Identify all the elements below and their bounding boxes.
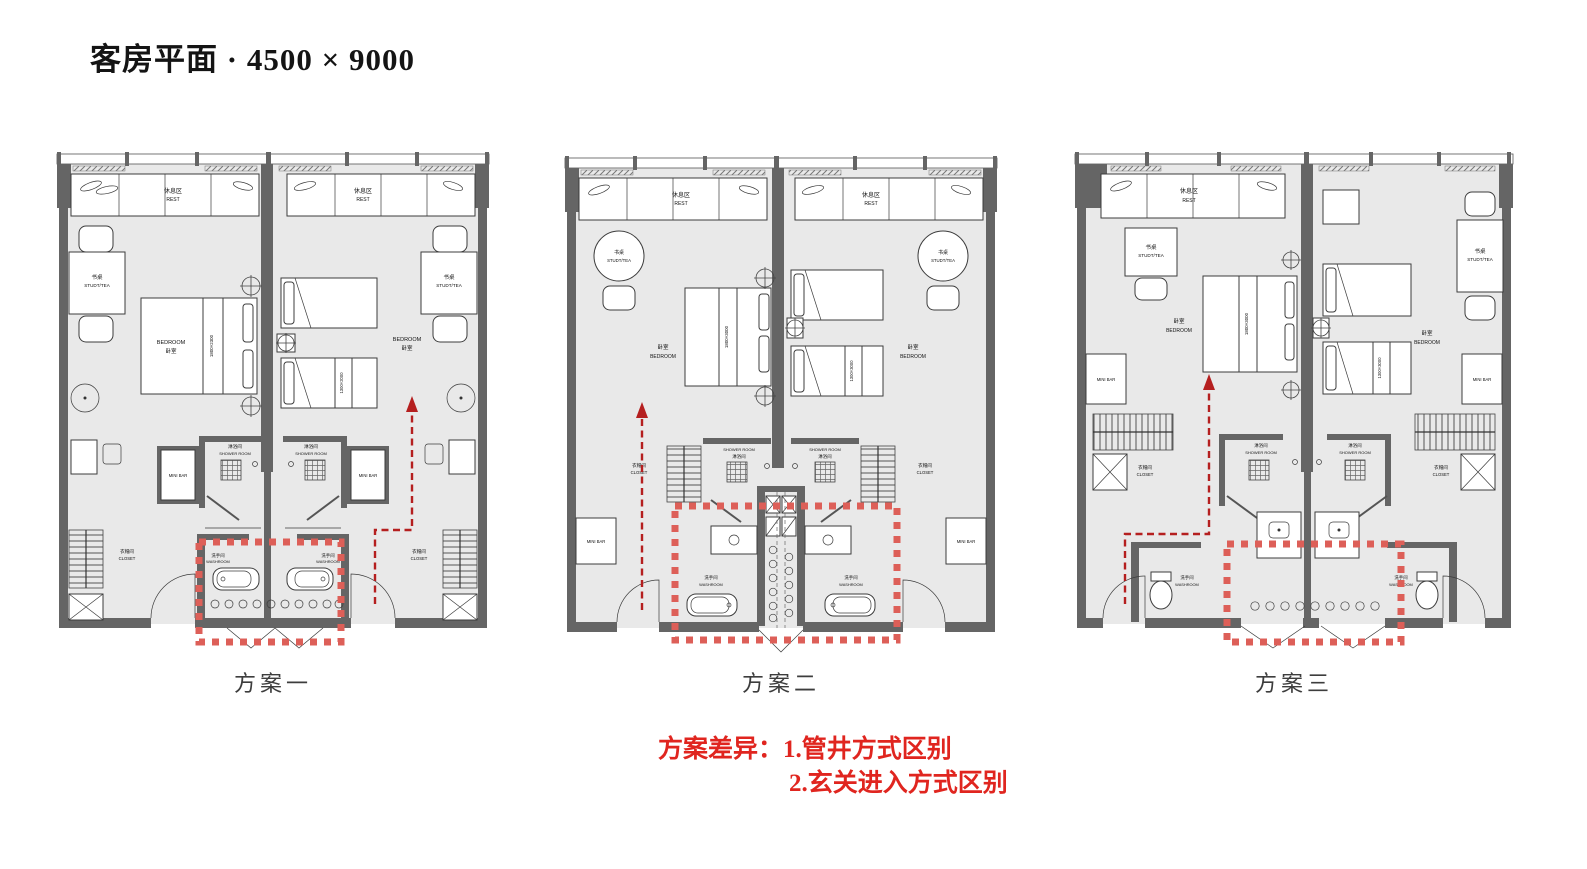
washroom-label-cn: 洗手间 (704, 574, 717, 581)
rest-label-en: REST (1182, 198, 1195, 204)
rest-label-en: REST (166, 197, 179, 203)
desk-label-cn: 书桌 (443, 273, 455, 281)
desk-label-cn: 书桌 (91, 273, 103, 281)
minibar-label: MINI BAR (1097, 377, 1116, 382)
sofa-rest-area-right: 休息区 REST (795, 178, 983, 220)
rest-label-cn: 休息区 (354, 187, 372, 195)
shower-label-cn: 淋浴间 (1254, 442, 1267, 449)
rest-label-cn: 休息区 (1180, 187, 1198, 195)
bedroom-label-en: BEDROOM (1414, 340, 1440, 346)
notes-item-2: 2.玄关进入方式区别 (789, 767, 1008, 801)
bedroom-label-en: BEDROOM (393, 337, 422, 343)
closet-label-en: CLOSET (1433, 472, 1450, 477)
floor-plan-scheme-3-drawing: 休息区 REST 书桌 STUDT/TEA 1800×3000 卧室 BEDRO… (1073, 148, 1515, 653)
bedroom-label-en: BEDROOM (1166, 328, 1192, 334)
desk-label-en: STUDT/TEA (607, 258, 631, 263)
minibar-right: MINI BAR (347, 446, 389, 504)
sofa-rest-area-left: 休息区 REST (1101, 174, 1285, 218)
minibar-label: MINI BAR (1473, 377, 1492, 382)
desk-label-en: STUDT/TEA (1138, 253, 1164, 258)
floor-plan-scheme-1: 休息区 REST 休息区 REST 书桌 STUDT/TEA 书桌 STUDT/… (55, 148, 491, 653)
sofa-rest-area-left: 休息区 REST (579, 178, 767, 220)
bedroom-label-cn: 卧室 (1173, 317, 1185, 325)
sofa-rest-area-left: 休息区 REST (71, 174, 259, 216)
rest-label-cn: 休息区 (862, 191, 880, 199)
minibar-left: MINI BAR (1086, 354, 1126, 404)
bed-size-label: 1300×2000 (339, 372, 344, 394)
desk-label-en: STUDT/TEA (931, 258, 955, 263)
bedroom-label-cn: 卧室 (907, 343, 919, 351)
shower-label-en: SHOWER ROOM (295, 451, 327, 456)
presentation-slide: 客房平面 · 4500 × 9000 休息区 (0, 0, 1587, 869)
rest-label-en: REST (674, 201, 687, 207)
rest-label-cn: 休息区 (164, 187, 182, 195)
notes-prefix: 方案差异： (658, 736, 783, 763)
closet-label-en: CLOSET (631, 470, 648, 475)
caption-scheme-3: 方案三 (1073, 666, 1515, 698)
washroom-label-en: WASHROOM (1175, 582, 1199, 587)
shower-label-en: SHOWER ROOM (723, 447, 755, 452)
desk-label-cn: 书桌 (1145, 243, 1157, 251)
minibar-label: MINI BAR (169, 473, 188, 478)
bedroom-label-en: BEDROOM (157, 340, 186, 346)
washroom-label-cn: 洗手间 (1180, 574, 1193, 581)
desk-label-en: STUDT/TEA (84, 283, 110, 288)
floor-plan-scheme-2: 休息区 REST 休息区 REST 书桌 STUDT/TEA 书桌 STUDT/… (563, 152, 999, 657)
bed-size-label: 1800×2300 (209, 334, 214, 357)
closet-label-cn: 衣帽间 (1434, 464, 1448, 471)
rest-label-en: REST (864, 201, 877, 207)
caption-scheme-2: 方案二 (563, 666, 999, 698)
washroom-label-cn: 洗手间 (211, 552, 224, 559)
washroom-label-en: WASHROOM (206, 559, 230, 564)
bedroom-label-cn: 卧室 (657, 343, 669, 351)
washroom-label-en: WASHROOM (316, 559, 340, 564)
shower-label-en: SHOWER ROOM (1245, 450, 1277, 455)
washroom-label-en: WASHROOM (699, 582, 723, 587)
shower-label-en: SHOWER ROOM (809, 447, 841, 452)
rest-label-cn: 休息区 (672, 191, 690, 199)
washroom-label-cn: 洗手间 (321, 552, 334, 559)
closet-label-en: CLOSET (917, 470, 934, 475)
bed-size-label: 1300×3000 (1377, 357, 1382, 379)
bedroom-label-en: BEDROOM (650, 354, 676, 360)
cabinet-right-room-top (1323, 190, 1359, 224)
desk-label-cn: 书桌 (614, 249, 624, 256)
minibar-right: MINI BAR (946, 518, 986, 564)
minibar-label: MINI BAR (957, 539, 976, 544)
closet-label-en: CLOSET (1137, 472, 1154, 477)
desk-label-en: STUDT/TEA (1467, 257, 1493, 262)
minibar-left: MINI BAR (157, 446, 199, 504)
walls-and-floor (565, 156, 997, 632)
desk-label-cn: 书桌 (1474, 247, 1486, 255)
washroom-label-cn: 洗手间 (844, 574, 857, 581)
scheme-difference-notes: 方案差异：1.管井方式区别 2.玄关进入方式区别 (658, 733, 1008, 801)
desk-label-cn: 书桌 (938, 249, 948, 256)
closet-label-en: CLOSET (411, 556, 428, 561)
washroom-label-en: WASHROOM (839, 582, 863, 587)
minibar-right: MINI BAR (1462, 354, 1502, 404)
closet-label-cn: 衣帽间 (120, 548, 134, 555)
bedroom-label-cn: 卧室 (1421, 329, 1433, 337)
rest-label-en: REST (356, 197, 369, 203)
shower-label-en: SHOWER ROOM (219, 451, 251, 456)
desk-label-en: STUDT/TEA (436, 283, 462, 288)
floor-plan-scheme-2-drawing: 休息区 REST 休息区 REST 书桌 STUDT/TEA 书桌 STUDT/… (563, 152, 999, 657)
closet-label-cn: 衣帽间 (918, 462, 932, 469)
shower-label-cn: 淋浴间 (818, 453, 831, 460)
minibar-label: MINI BAR (359, 473, 378, 478)
shower-label-cn: 淋浴间 (304, 443, 318, 450)
bed-size-label: 1800×3000 (1244, 312, 1249, 335)
king-bed-left-room: 1800×2300 BEDROOM 卧室 (141, 298, 257, 394)
bed-size-label: 1300×3000 (849, 360, 854, 382)
closet-label-cn: 衣帽间 (1138, 464, 1152, 471)
shower-label-en: SHOWER ROOM (1339, 450, 1371, 455)
page-title: 客房平面 · 4500 × 9000 (90, 34, 415, 79)
notes-line-1: 方案差异：1.管井方式区别 (658, 733, 1008, 767)
bedroom-label-en: BEDROOM (900, 354, 926, 360)
shower-label-cn: 淋浴间 (1348, 442, 1361, 449)
closet-label-cn: 衣帽间 (412, 548, 426, 555)
caption-scheme-1: 方案一 (55, 666, 491, 698)
shower-label-cn: 淋浴间 (732, 453, 745, 460)
sofa-rest-area-right: 休息区 REST (287, 174, 475, 216)
bedroom-label-cn: 卧室 (165, 347, 177, 355)
floor-plan-scheme-3: 休息区 REST 书桌 STUDT/TEA 1800×3000 卧室 BEDRO… (1073, 148, 1515, 653)
minibar-left: MINI BAR (576, 518, 616, 564)
bedroom-label-cn: 卧室 (401, 344, 413, 352)
minibar-label: MINI BAR (587, 539, 606, 544)
bed-size-label: 1800×3000 (724, 325, 729, 348)
floor-plan-scheme-1-drawing: 休息区 REST 休息区 REST 书桌 STUDT/TEA 书桌 STUDT/… (55, 148, 491, 653)
closet-label-en: CLOSET (119, 556, 136, 561)
washroom-label-cn: 洗手间 (1394, 574, 1407, 581)
closet-label-cn: 衣帽间 (632, 462, 646, 469)
notes-item-1: 1.管井方式区别 (783, 736, 952, 763)
shower-label-cn: 淋浴间 (228, 443, 242, 450)
